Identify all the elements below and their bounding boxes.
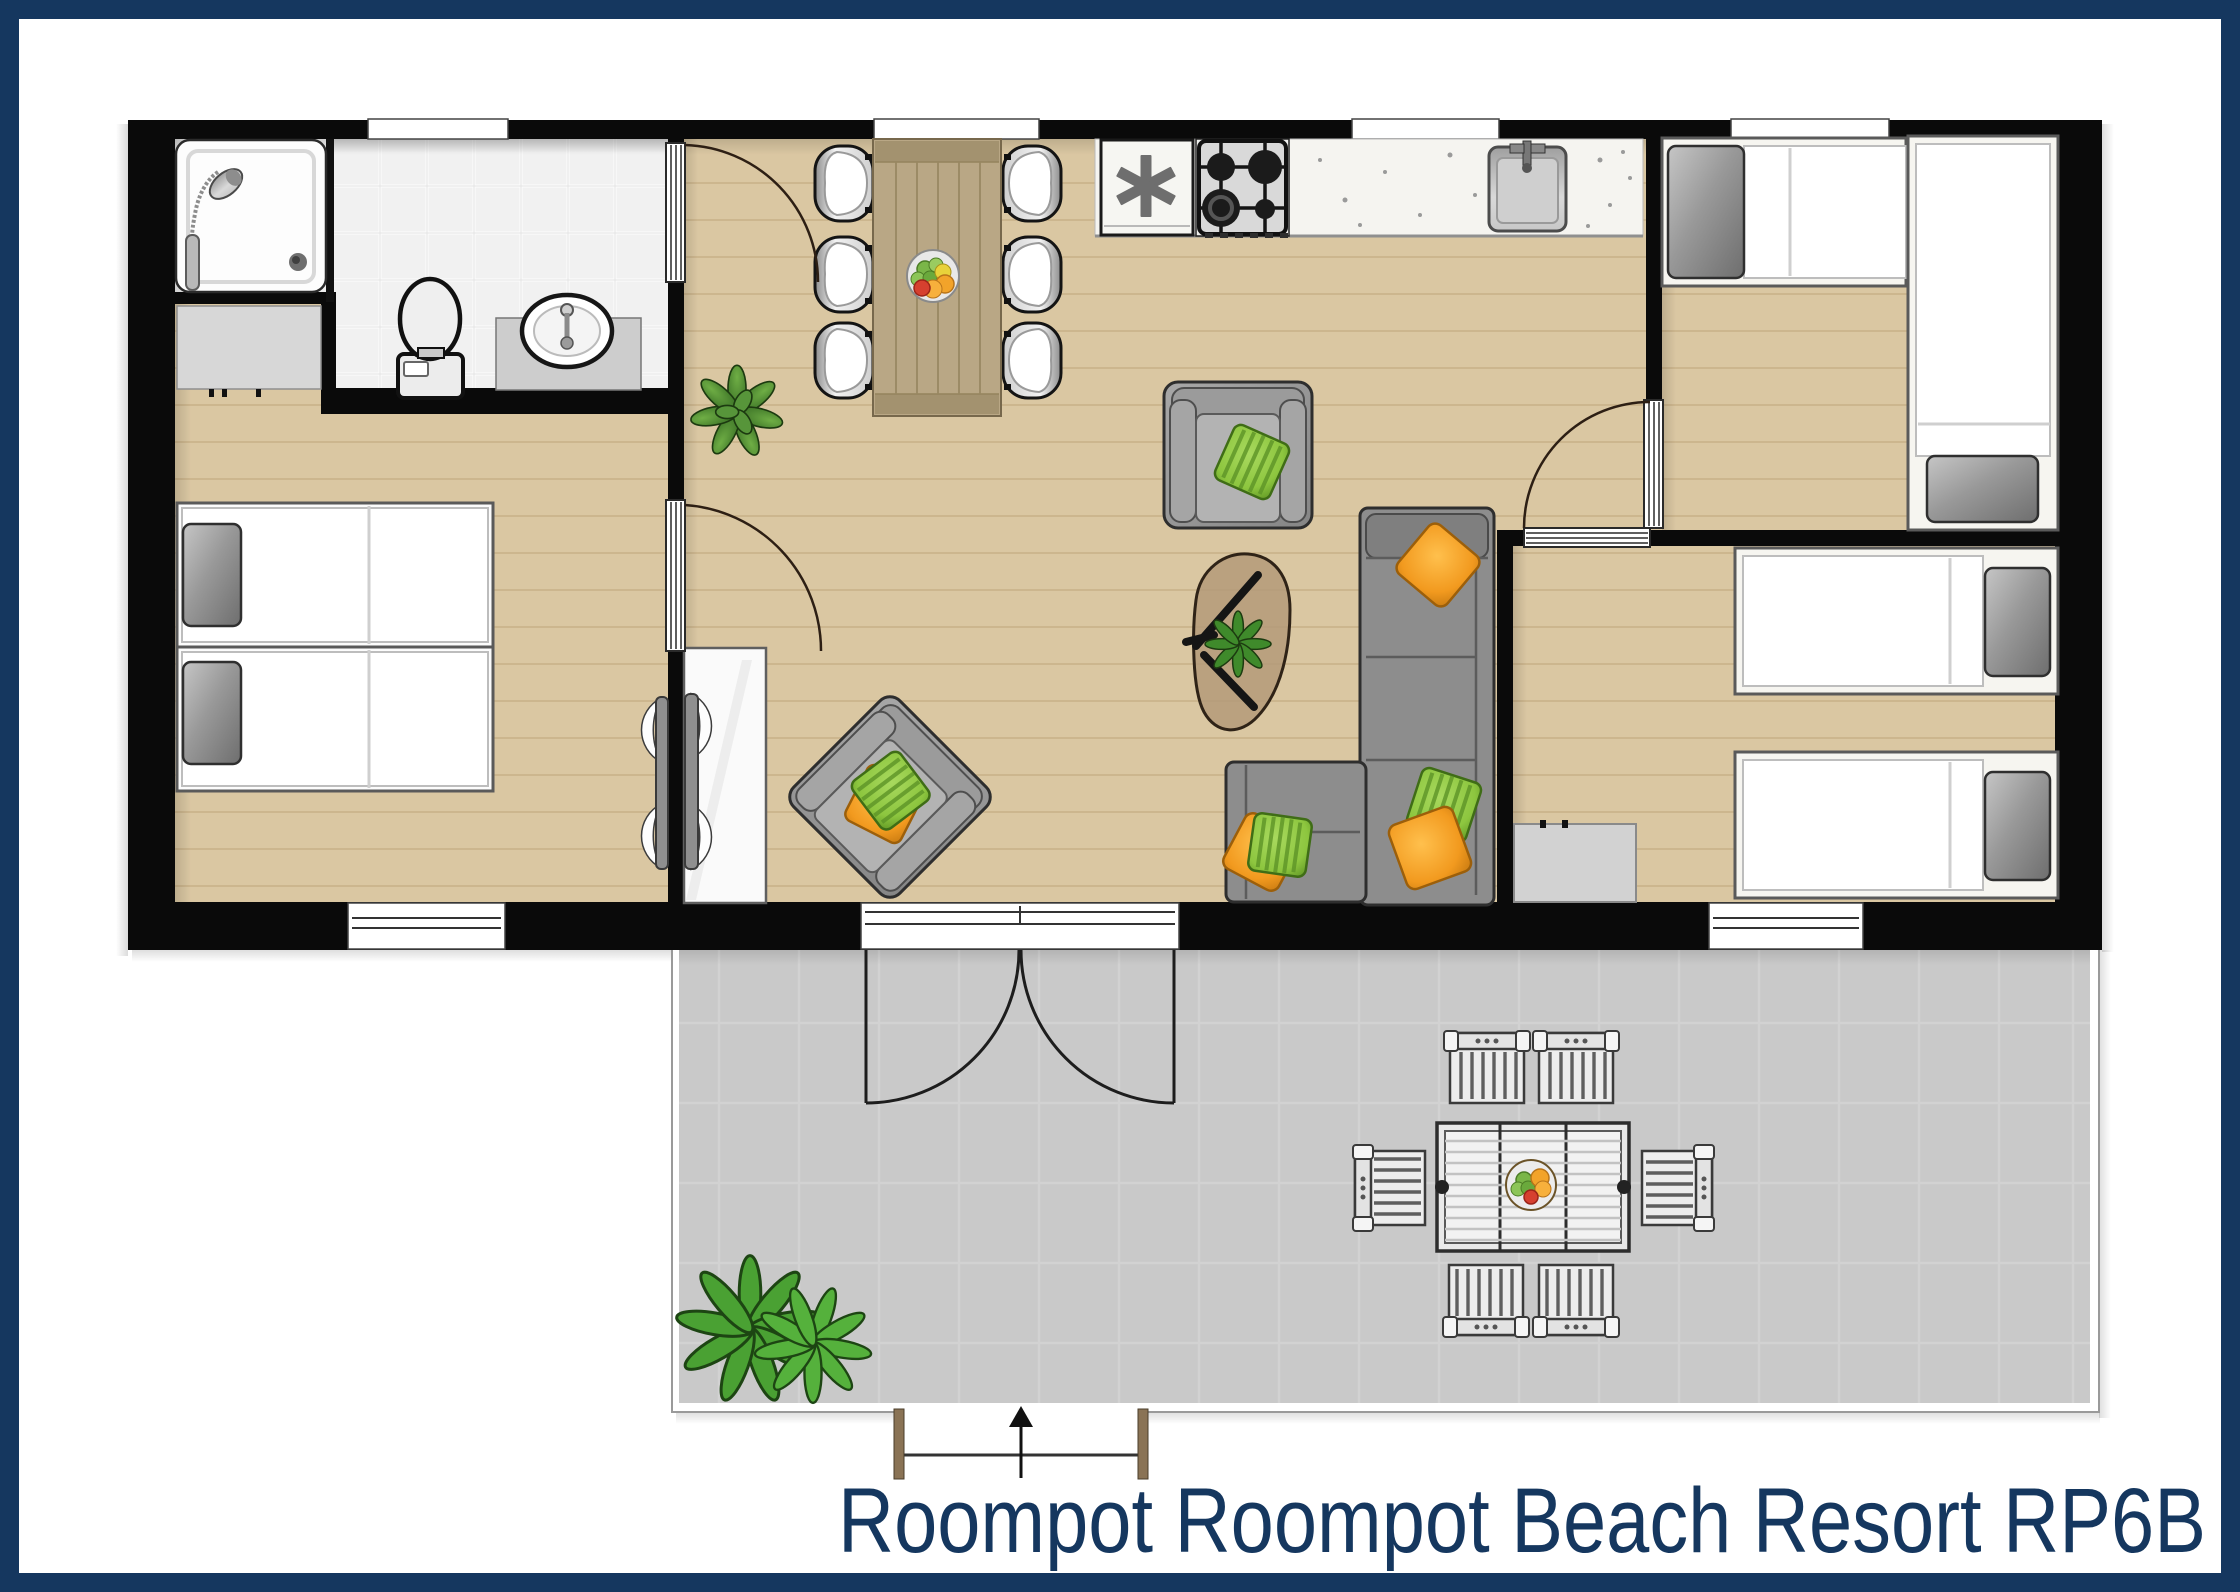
svg-text:Roompot Roompot Beach Resort R: Roompot Roompot Beach Resort RP6B <box>838 1470 2206 1572</box>
